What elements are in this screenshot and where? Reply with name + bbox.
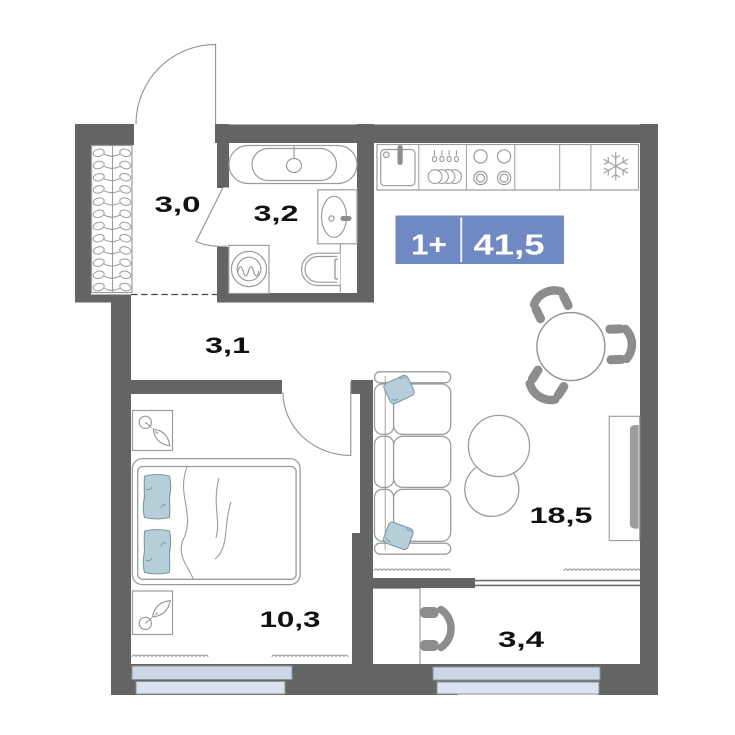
svg-text:10,3: 10,3 xyxy=(260,607,321,632)
svg-text:1+: 1+ xyxy=(411,230,447,262)
svg-text:3,2: 3,2 xyxy=(254,201,299,226)
svg-text:3,0: 3,0 xyxy=(155,192,201,217)
svg-text:3,1: 3,1 xyxy=(205,333,250,358)
svg-text:41,5: 41,5 xyxy=(474,230,545,262)
svg-text:18,5: 18,5 xyxy=(530,503,593,528)
svg-text:3,4: 3,4 xyxy=(498,627,545,652)
